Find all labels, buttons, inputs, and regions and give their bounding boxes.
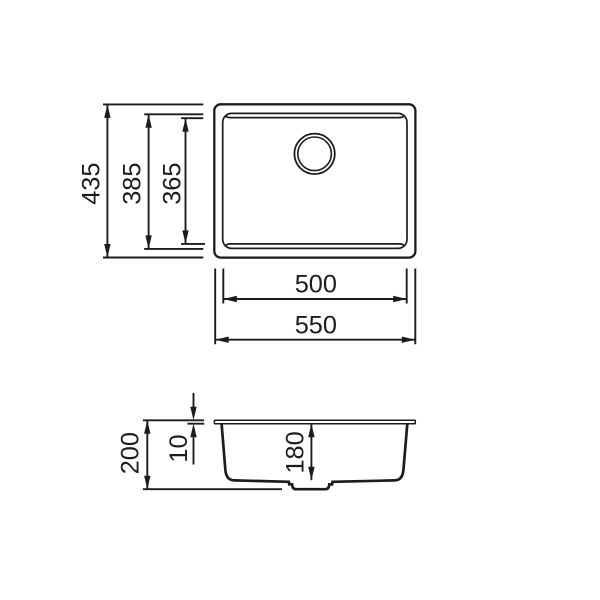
svg-text:500: 500 xyxy=(295,270,337,298)
svg-text:385: 385 xyxy=(119,163,147,205)
svg-text:200: 200 xyxy=(117,432,145,474)
svg-text:180: 180 xyxy=(281,431,309,473)
svg-text:10: 10 xyxy=(165,434,193,462)
svg-text:435: 435 xyxy=(77,163,105,205)
svg-text:550: 550 xyxy=(295,311,337,339)
svg-text:365: 365 xyxy=(158,163,186,205)
